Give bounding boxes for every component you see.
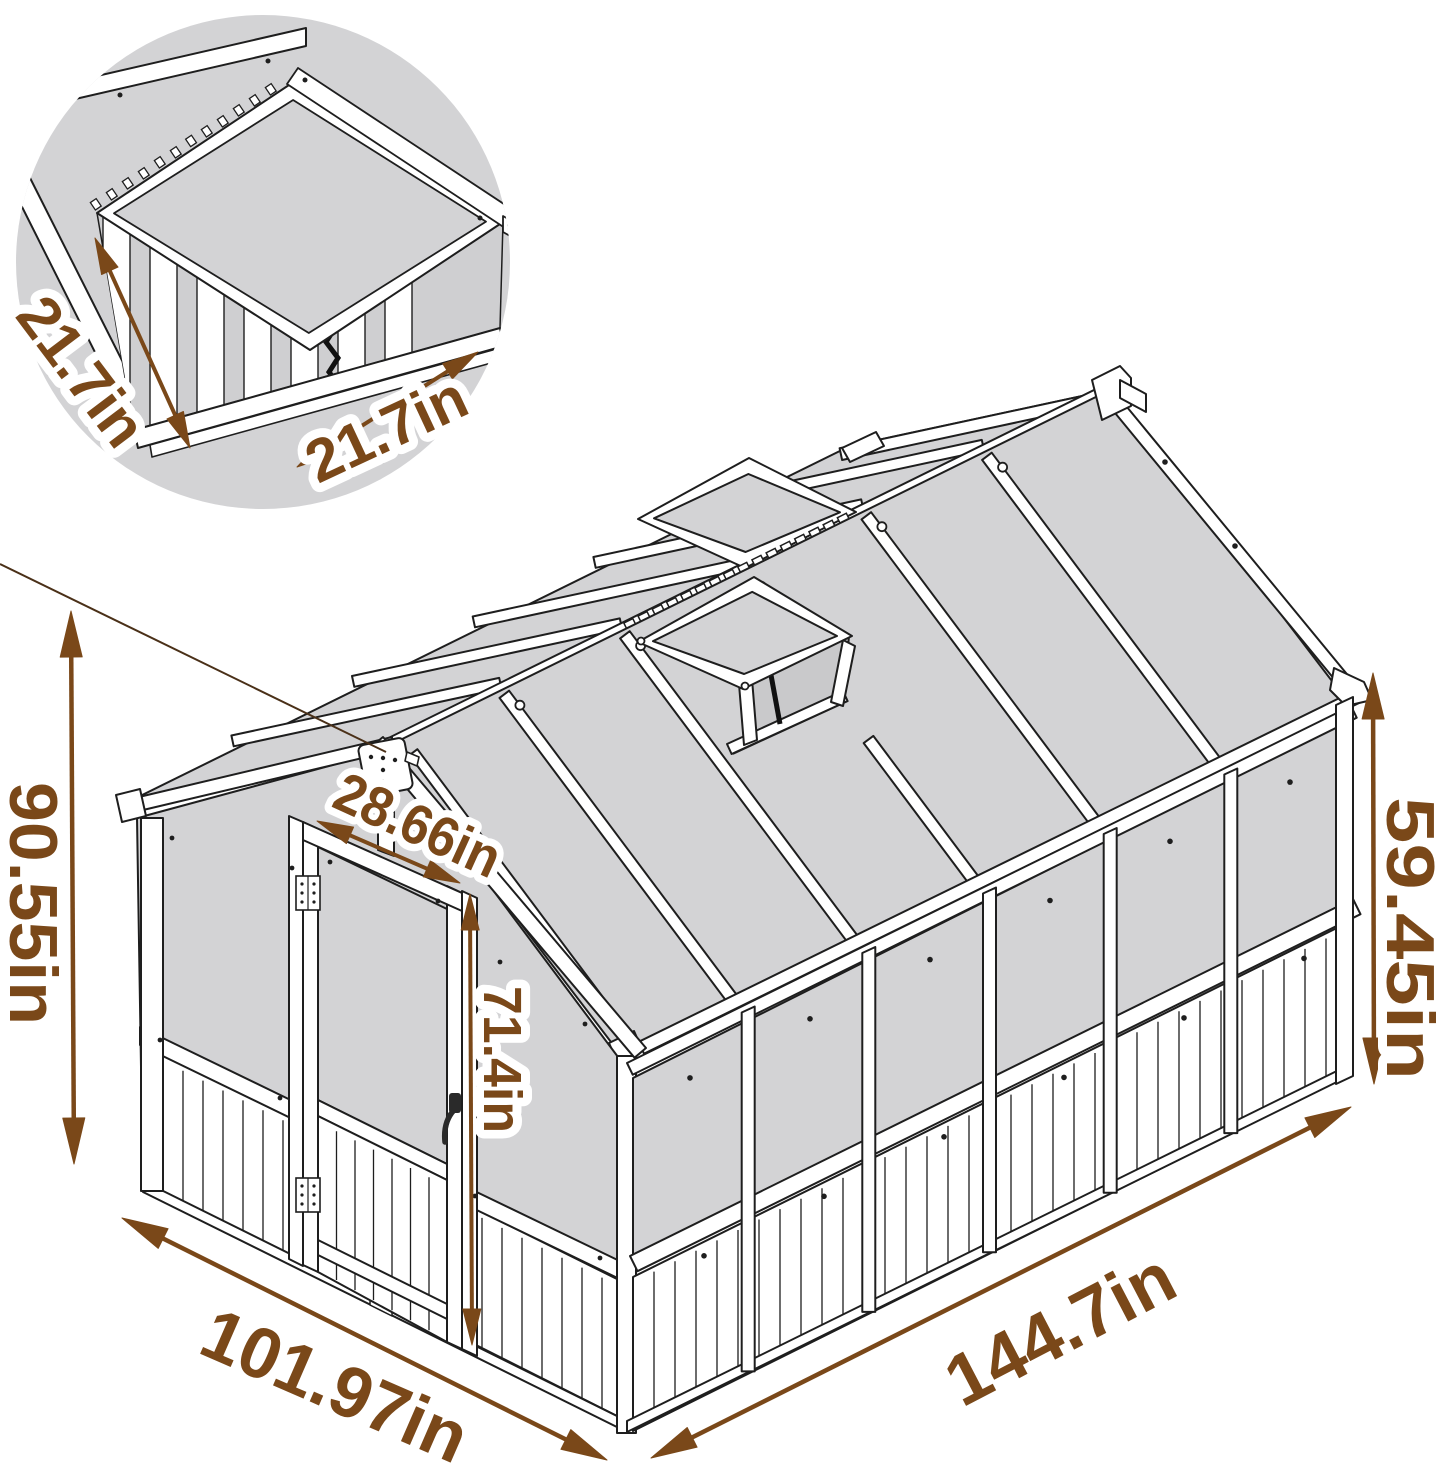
svg-text:59.45in: 59.45in [1372,797,1445,1080]
svg-text:71.4in: 71.4in [472,986,532,1133]
svg-text:90.55in: 90.55in [0,782,71,1025]
